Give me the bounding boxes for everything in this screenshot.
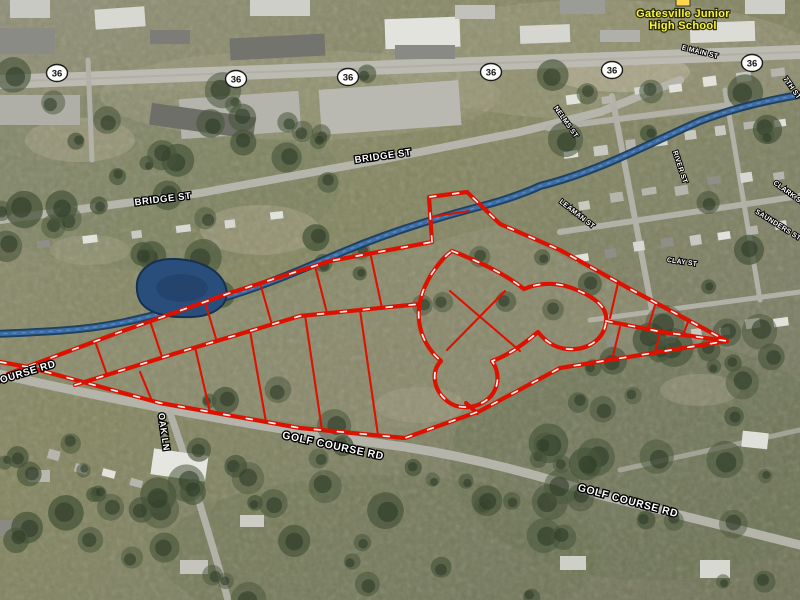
svg-text:36: 36: [486, 68, 497, 79]
highway-36-shield: 36: [47, 65, 68, 82]
svg-text:36: 36: [747, 59, 758, 70]
highway-36-shield: 36: [481, 64, 502, 81]
highway-36-shield: 36: [338, 69, 359, 86]
highway-36-shield: 36: [602, 62, 623, 79]
svg-text:36: 36: [231, 75, 242, 86]
svg-text:36: 36: [607, 66, 618, 77]
school-icon: [676, 0, 690, 6]
school-label-line1: Gatesville Junior: [636, 8, 730, 20]
highway-36-shield: 36: [226, 71, 247, 88]
school-label-line2: High School: [649, 20, 716, 32]
svg-text:36: 36: [343, 73, 354, 84]
map-canvas: BRIDGE ST BRIDGE ST GOLF COURSE RD GOLF …: [0, 0, 800, 600]
satellite-map-view[interactable]: BRIDGE ST BRIDGE ST GOLF COURSE RD GOLF …: [0, 0, 800, 600]
highway-36-shield: 36: [742, 55, 763, 72]
svg-text:36: 36: [52, 69, 63, 80]
